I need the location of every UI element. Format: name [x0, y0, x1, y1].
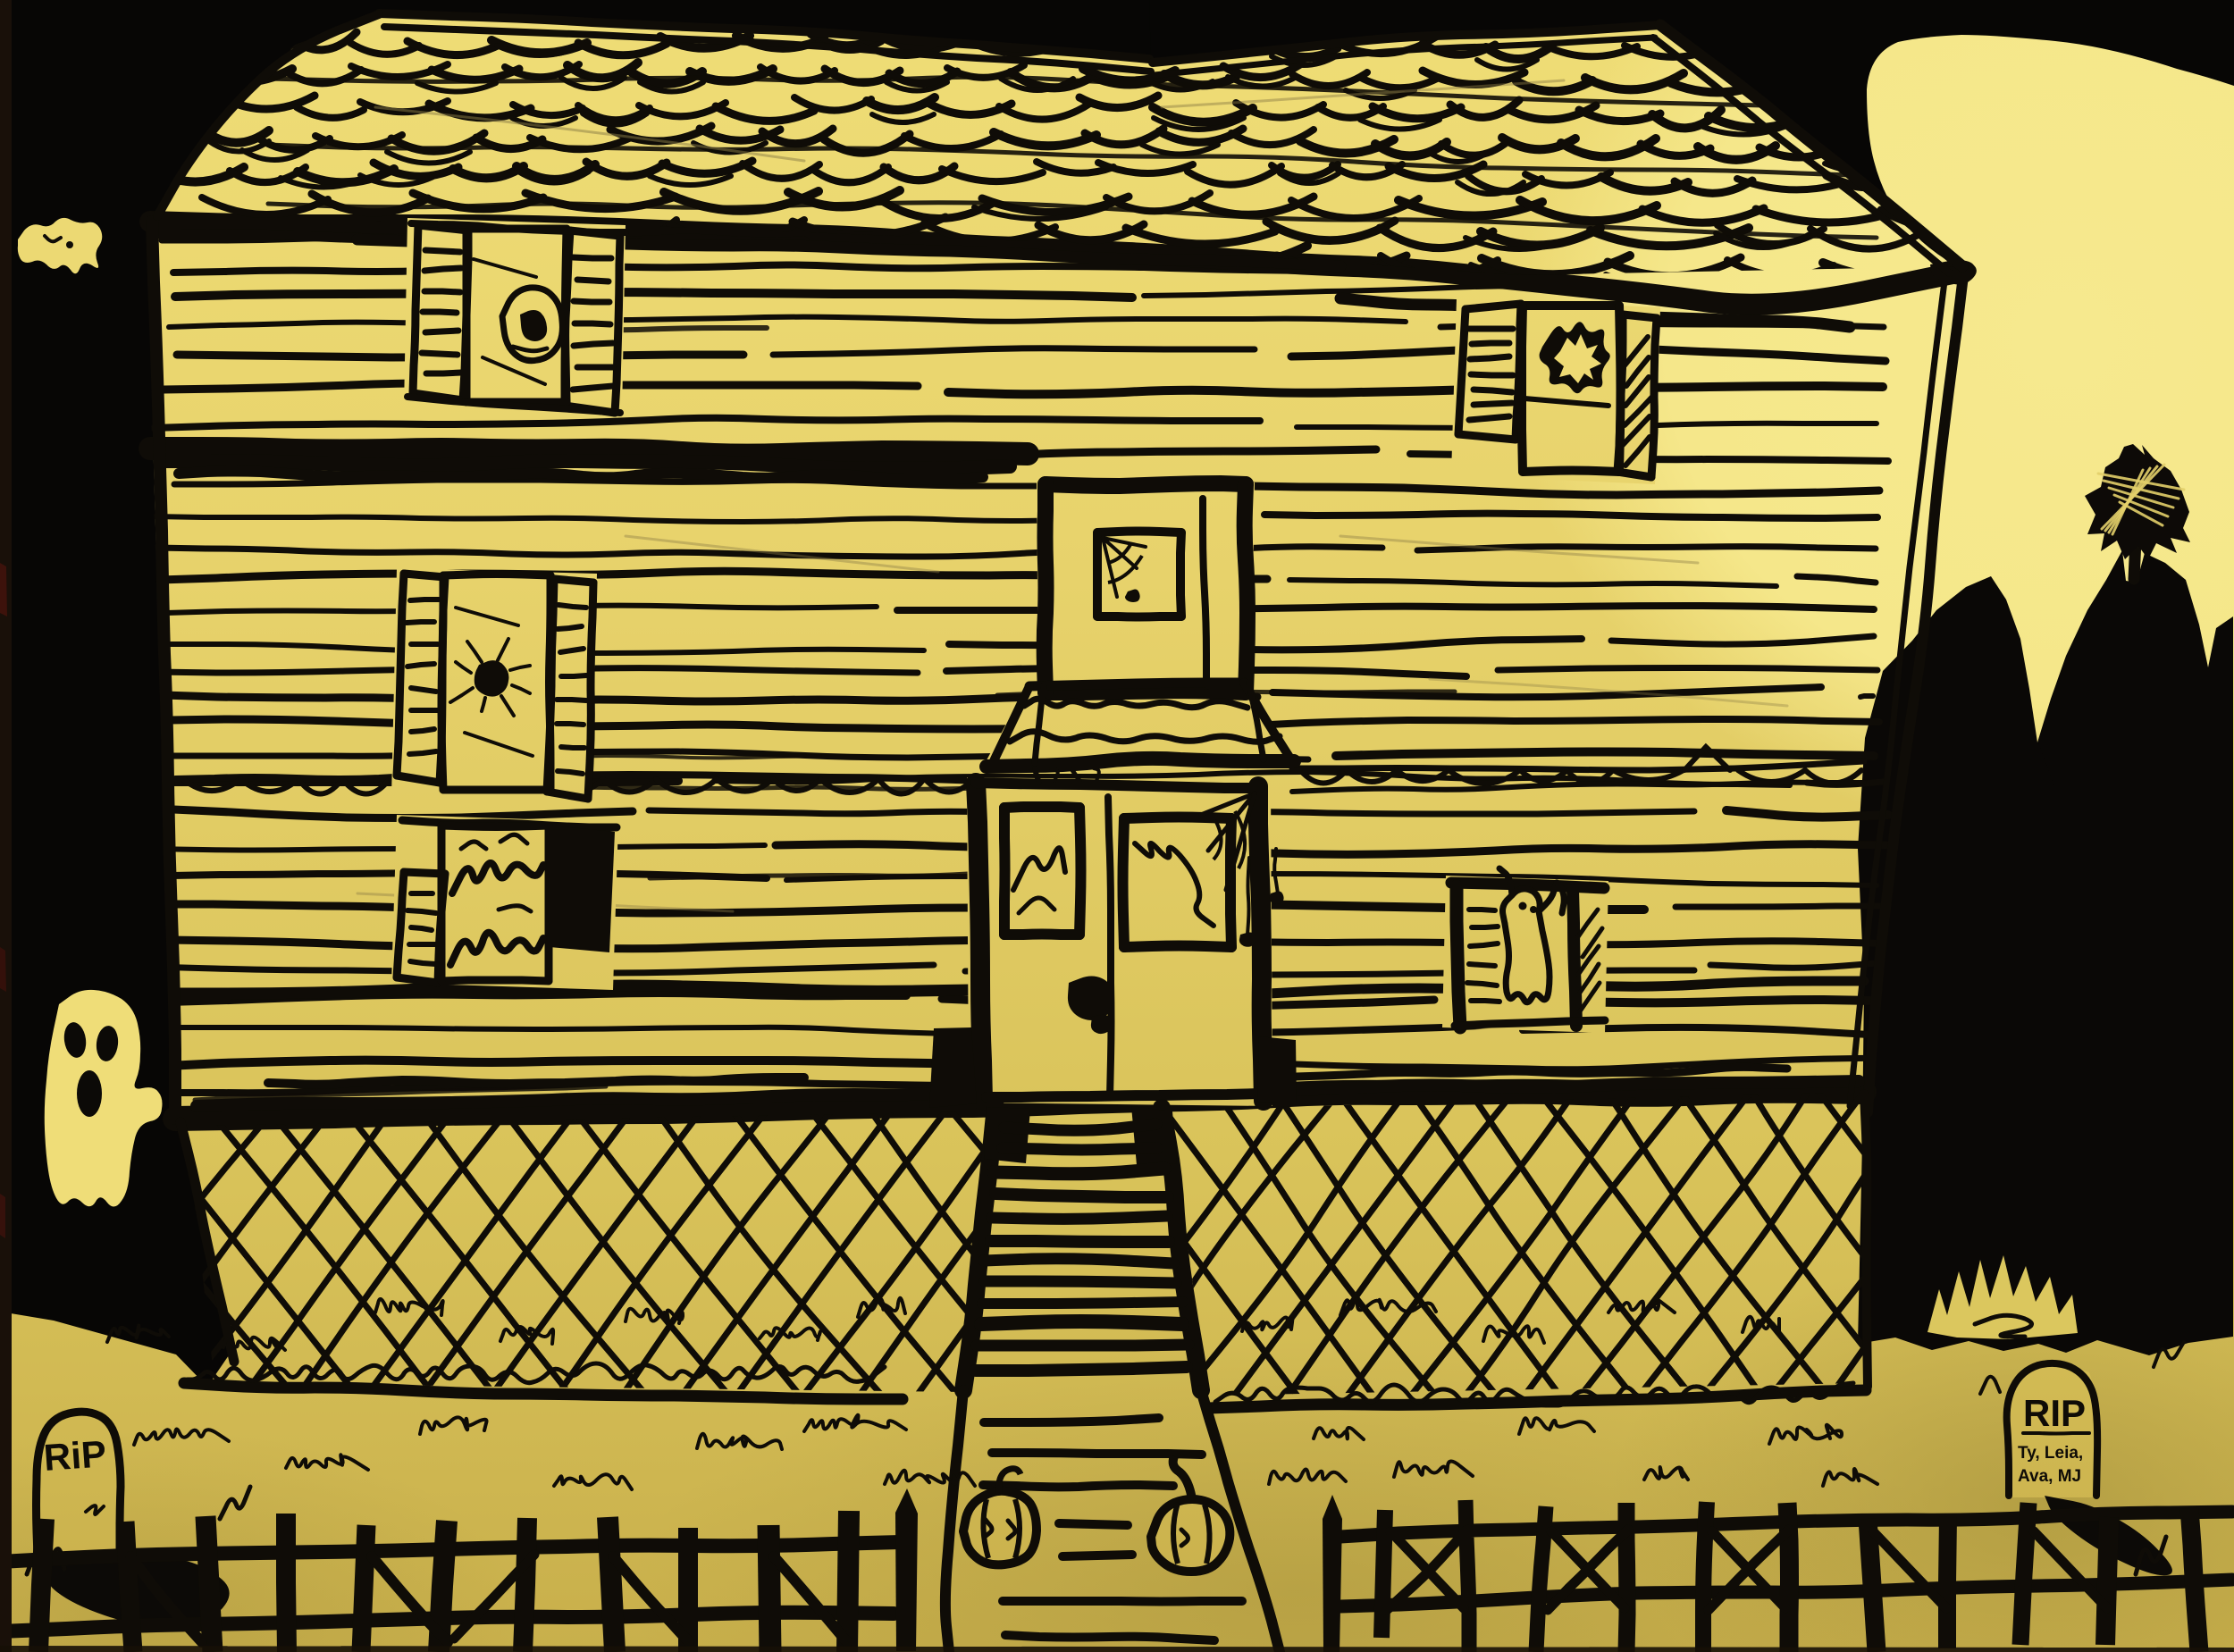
- svg-text:RIP: RIP: [2023, 1392, 2086, 1434]
- svg-text:Ty, Leia,: Ty, Leia,: [2018, 1444, 2083, 1463]
- svg-text:RiP: RiP: [42, 1432, 107, 1479]
- svg-text:Ava, MJ: Ava, MJ: [2018, 1467, 2081, 1486]
